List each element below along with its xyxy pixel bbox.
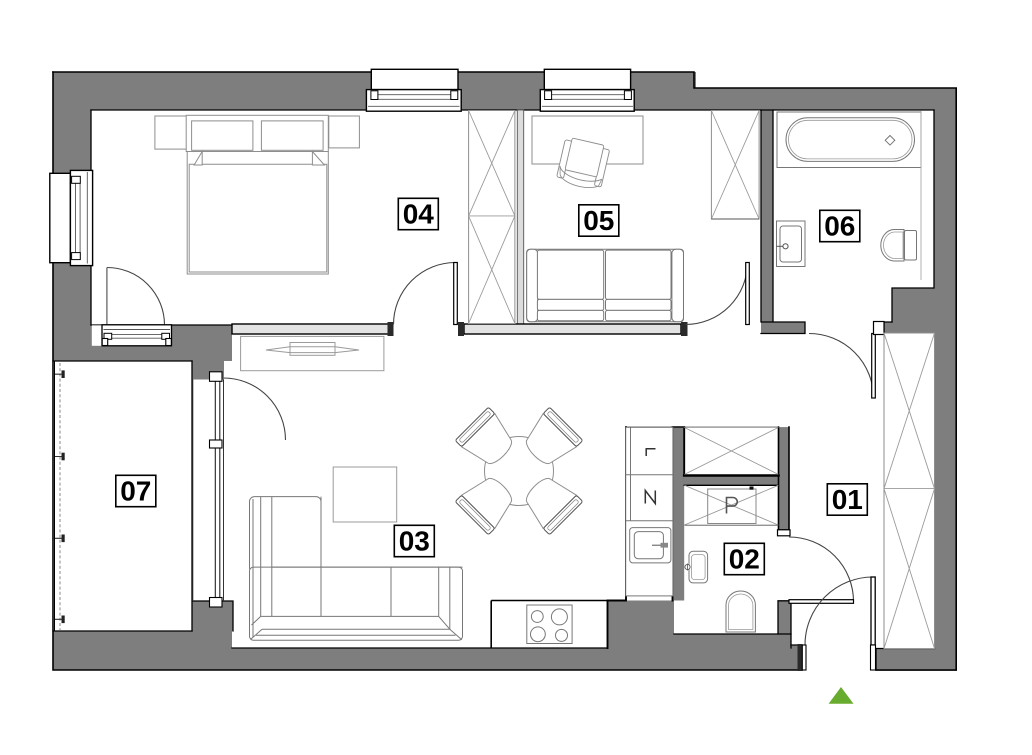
svg-text:02: 02 xyxy=(729,543,760,574)
svg-text:04: 04 xyxy=(403,198,435,229)
svg-text:06: 06 xyxy=(824,210,855,241)
svg-text:03: 03 xyxy=(399,525,430,556)
svg-text:05: 05 xyxy=(583,205,614,236)
svg-text:07: 07 xyxy=(120,475,151,506)
svg-text:01: 01 xyxy=(832,484,863,515)
